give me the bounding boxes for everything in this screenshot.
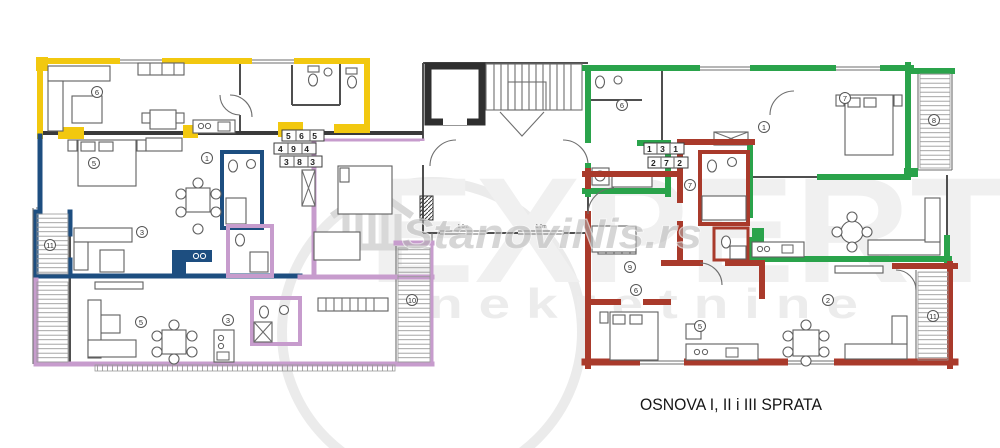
unit-row: 3 8 3: [284, 157, 318, 167]
floor-plan-page: EXPERT n e k r e t n i n e: [0, 0, 1000, 448]
room-number: 3: [140, 228, 144, 237]
room-number: 3: [226, 316, 230, 325]
room-number: 11: [929, 312, 937, 321]
plan-caption: OSNOVA I, II i III SPRATA: [640, 395, 823, 414]
yellow-apartment-furniture: [48, 63, 357, 133]
room-number: 8: [932, 116, 936, 125]
unit-table-left: 5 6 5 4 9 4 3 8 3: [274, 130, 324, 167]
room-number: 1: [205, 154, 209, 163]
room-number: 10: [408, 296, 416, 305]
unit-row: 4 9 4: [278, 144, 312, 154]
room-number: 9: [628, 263, 632, 272]
elevator-door: [443, 116, 467, 125]
room-number: 1: [762, 123, 766, 132]
unit-row: 2 7 2: [651, 158, 685, 168]
room-number: 5: [139, 318, 143, 327]
room-number: 7: [843, 94, 847, 103]
watermark-brand: StanoviNis.rs: [402, 210, 702, 257]
room-number: 6: [95, 88, 99, 97]
room-number: 11: [46, 241, 54, 250]
room-number: 7: [688, 181, 692, 190]
floor-plan-drawing: EXPERT n e k r e t n i n e: [0, 0, 1000, 448]
room-number: 5: [698, 322, 702, 331]
room-number: 6: [620, 101, 624, 110]
unit-row: 1 3 1: [647, 144, 681, 154]
stairs: [486, 64, 582, 136]
elevator-shaft: [428, 66, 482, 122]
room-number: 2: [826, 296, 830, 305]
pink-bottom-fence: [95, 365, 395, 371]
unit-row: 5 6 5: [286, 131, 320, 141]
room-number: 6: [634, 286, 638, 295]
room-number: 5: [92, 159, 96, 168]
pink-balcony-left: [37, 282, 68, 362]
